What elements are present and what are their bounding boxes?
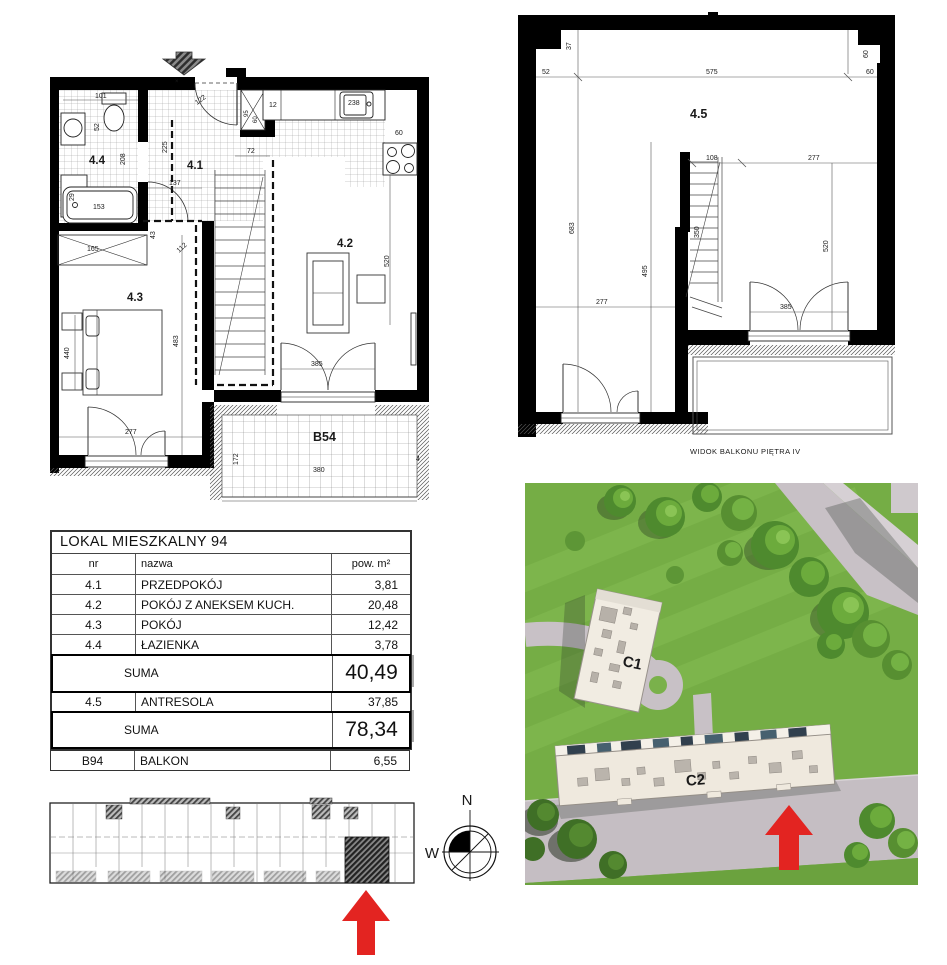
table-title: LOKAL MIESZKALNY 94 [52, 532, 410, 554]
dimension-labels: 37 52 575 60 60 683 495 277 108 350 277 … [542, 42, 874, 311]
bed [83, 310, 162, 395]
location-arrow-icon [342, 890, 390, 955]
suma-label: SUMA [52, 666, 332, 680]
cell-nazwa: ANTRESOLA [136, 692, 332, 711]
entrance-mark: × [175, 79, 179, 85]
svg-text:137: 137 [169, 180, 181, 187]
entrance-arrow-icon [163, 52, 205, 75]
col-header-nr: nr [52, 554, 136, 574]
tree [844, 842, 870, 868]
cell-nazwa: PRZEDPOKÓJ [136, 575, 332, 594]
kitchen-tiles-2 [345, 157, 385, 187]
insulation-hatch [518, 424, 708, 434]
tree [859, 803, 895, 839]
table-header: nr nazwa pow. m² [52, 554, 410, 575]
floor-plan-level: × [45, 25, 433, 507]
svg-text:440: 440 [64, 347, 71, 359]
svg-text:277: 277 [808, 155, 820, 162]
cell-pow: 37,85 [332, 692, 410, 711]
svg-text:520: 520 [384, 255, 391, 267]
balcony-outline [693, 357, 892, 434]
svg-text:43: 43 [150, 231, 157, 239]
pavement-patch [891, 483, 918, 513]
room-label: 4.4 [89, 155, 106, 167]
svg-text:112: 112 [176, 242, 189, 255]
svg-text:101: 101 [95, 93, 107, 100]
stove [383, 143, 417, 175]
area-table: LOKAL MIESZKALNY 94 nr nazwa pow. m² 4.1… [50, 530, 412, 750]
kitchen-tiles [263, 120, 385, 157]
cell-nazwa: POKÓJ Z ANEKSEM KUCH. [136, 595, 332, 614]
svg-text:385: 385 [780, 304, 792, 311]
svg-text:208: 208 [120, 153, 127, 165]
svg-text:350: 350 [694, 226, 701, 238]
svg-text:225: 225 [162, 141, 169, 153]
tree [717, 540, 743, 566]
compass-north-label: N [462, 792, 473, 809]
svg-text:385: 385 [311, 361, 323, 368]
cell-nazwa: BALKON [135, 751, 331, 770]
cell-pow: 6,55 [331, 751, 409, 770]
balcony-table: B94 BALKON 6,55 [50, 750, 410, 771]
staircase [686, 157, 722, 317]
floor-plan-mezzanine: 4.5 37 52 575 60 60 683 495 277 108 350 … [518, 12, 898, 460]
svg-text:483: 483 [173, 335, 180, 347]
building-c2-label: C2 [685, 771, 705, 789]
balcony-label: B54 [313, 430, 336, 444]
toilet-bowl [104, 105, 124, 131]
tree [852, 620, 890, 658]
staircase [215, 170, 265, 375]
roof-block [310, 798, 332, 804]
svg-text:52: 52 [94, 123, 101, 131]
window-right [748, 282, 850, 341]
suma-value: 40,49 [332, 655, 410, 691]
svg-text:4: 4 [416, 456, 420, 463]
svg-text:72: 72 [247, 148, 255, 155]
washbasin [64, 119, 82, 137]
kitchen-faucet [367, 102, 371, 106]
svg-text:277: 277 [596, 299, 608, 306]
living-furniture [307, 253, 416, 365]
suma-label: SUMA [52, 723, 332, 737]
bush [666, 566, 684, 584]
svg-text:683: 683 [569, 222, 576, 234]
cell-nr: 4.3 [52, 615, 136, 634]
svg-text:60: 60 [395, 130, 403, 137]
svg-text:380: 380 [313, 467, 325, 474]
compass-svg: N W [420, 788, 515, 903]
compass-quadrant [449, 831, 470, 852]
mezzanine-caption: WIDOK BALKONU PIĘTRA IV [690, 447, 800, 456]
tree [692, 483, 722, 512]
cell-nr: 4.5 [52, 692, 136, 711]
cell-nazwa: POKÓJ [136, 615, 332, 634]
table-row: B94 BALKON 6,55 [51, 751, 409, 770]
cell-pow: 3,78 [332, 635, 410, 654]
cell-nr: B94 [51, 751, 135, 770]
table-row: 4.4 ŁAZIENKA 3,78 [52, 635, 410, 655]
svg-text:12: 12 [269, 102, 277, 109]
cell-pow: 20,48 [332, 595, 410, 614]
svg-text:52: 52 [542, 69, 550, 76]
tree [888, 828, 918, 858]
svg-text:153: 153 [93, 204, 105, 211]
col-header-nazwa: nazwa [136, 554, 332, 574]
table-row: 4.5 ANTRESOLA 37,85 [52, 692, 410, 712]
svg-text:575: 575 [706, 69, 718, 76]
suma-row: SUMA 40,49 [52, 655, 410, 692]
svg-text:238: 238 [348, 100, 360, 107]
window-left [561, 364, 640, 423]
margin-tick [412, 655, 414, 687]
tree-dark [599, 851, 627, 879]
suma-value: 78,34 [332, 712, 410, 748]
tree [789, 557, 829, 597]
tree [721, 495, 757, 531]
cell-pow: 3,81 [332, 575, 410, 594]
svg-text:37: 37 [566, 42, 573, 50]
room-label: 4.1 [187, 160, 204, 172]
room-label: 4.5 [690, 107, 707, 121]
tree [882, 650, 912, 680]
balcony-door [281, 343, 375, 402]
cell-nazwa: ŁAZIENKA [136, 635, 332, 654]
svg-text:108: 108 [706, 155, 718, 162]
cell-nr: 4.4 [52, 635, 136, 654]
shaft [241, 90, 265, 130]
compass-rose: N W [420, 788, 515, 903]
svg-text:95: 95 [244, 110, 250, 117]
room-label: 4.3 [127, 292, 143, 304]
armchair [357, 275, 385, 303]
cell-nr: 4.2 [52, 595, 136, 614]
highlighted-unit [345, 837, 389, 883]
nightstand [62, 313, 82, 330]
room-label: 4.2 [337, 238, 353, 250]
bathtub-drain [73, 203, 78, 208]
compass-west-label: W [425, 845, 440, 862]
svg-text:60: 60 [253, 116, 259, 123]
svg-text:520: 520 [823, 240, 830, 252]
building-overview [48, 795, 418, 960]
cell-pow: 12,42 [332, 615, 410, 634]
tv-unit [411, 313, 416, 365]
floor-plan-mezzanine-svg: 4.5 37 52 575 60 60 683 495 277 108 350 … [518, 12, 898, 460]
site-render-svg: C1 C2 [525, 483, 918, 885]
insulation-hatch [688, 345, 895, 355]
bush [565, 531, 585, 551]
table-row: 4.2 POKÓJ Z ANEKSEM KUCH. 20,48 [52, 595, 410, 615]
floor-plan-level-svg: × [45, 25, 433, 507]
table-row: 4.1 PRZEDPOKÓJ 3,81 [52, 575, 410, 595]
nightstand [62, 373, 82, 390]
svg-text:29: 29 [69, 193, 76, 201]
cell-nr: 4.1 [52, 575, 136, 594]
suma-row: SUMA 78,34 [52, 712, 410, 748]
svg-text:165: 165 [87, 246, 99, 253]
building-overview-svg [48, 795, 418, 960]
loop-island [649, 676, 667, 694]
bedroom-furniture [58, 235, 162, 395]
svg-text:172: 172 [233, 453, 240, 465]
svg-text:60: 60 [863, 50, 870, 58]
table-row: 4.3 POKÓJ 12,42 [52, 615, 410, 635]
svg-text:60: 60 [866, 69, 874, 76]
svg-text:495: 495 [642, 265, 649, 277]
margin-tick [412, 710, 414, 742]
svg-text:277: 277 [125, 429, 137, 436]
col-header-pow: pow. m² [332, 554, 410, 574]
tree [817, 631, 845, 659]
balcony-floor [222, 415, 417, 497]
site-render-3d: C1 C2 [525, 483, 918, 885]
